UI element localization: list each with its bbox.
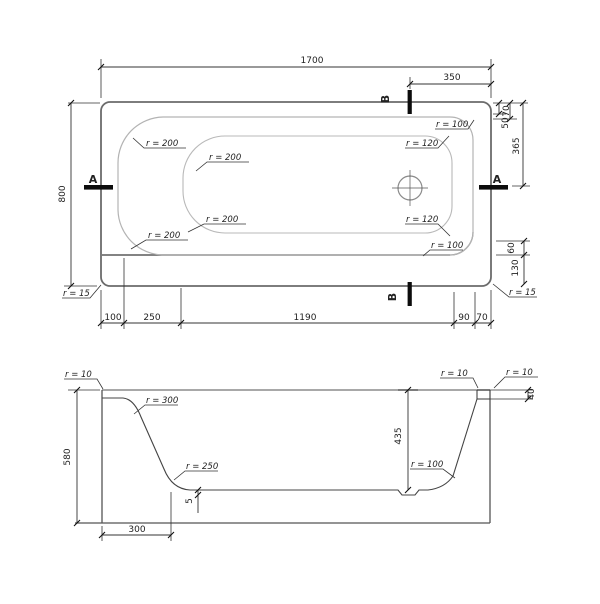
dim-bottom-60: 60 [507,242,517,254]
plan-extension-lines [64,59,530,329]
section-leader-lines [64,377,538,480]
tub-outer-edge [101,102,491,286]
plan-dimension-lines [71,67,524,323]
dim-height-580: 580 [63,448,73,465]
dim-width: 800 [58,185,68,202]
radius-200-outer-bottom: r = 200 [148,231,180,241]
radius-120-bottom: r = 120 [406,215,438,225]
plan-leader-lines [62,120,537,298]
bathtub-technical-drawing: A A B B 1700 350 800 100 250 1190 90 70 … [0,0,600,600]
radius-120-top: r = 120 [406,139,438,149]
section-b-bar-bottom [408,282,412,306]
dim-drain-365: 365 [512,137,522,154]
dim-rim-50: 50 [501,117,511,129]
dim-row-250: 250 [143,313,160,323]
dim-length: 1700 [301,56,324,66]
dim-rim-40: 40 [527,388,537,400]
section-a-label-right: A [493,173,502,186]
drain-centerlines [392,170,428,206]
section-b-label-top: B [379,95,392,103]
radius-200-outer-top: r = 200 [146,139,178,149]
radius-100-top: r = 100 [436,120,468,130]
section-extension-lines [68,390,533,541]
section-b-label-bottom: B [386,293,399,301]
dim-drain-offset: 350 [443,73,460,83]
plan-view: A A B B 1700 350 800 100 250 1190 90 70 … [58,56,537,329]
radius-100-bottom: r = 100 [431,241,463,251]
dim-depth-435: 435 [394,427,404,444]
radius-10-left: r = 10 [65,370,92,380]
dim-row-1190: 1190 [294,313,317,323]
radius-15-left: r = 15 [63,289,90,299]
dim-rim-70: 70 [502,105,512,117]
section-view: 580 435 300 40 5 r = 10 r = 10 r = 10 r … [63,368,538,541]
radius-300: r = 300 [146,396,178,406]
dim-row-90: 90 [458,313,470,323]
section-dimension-ticks [74,387,531,538]
dim-bottom-130: 130 [511,259,521,276]
dim-row-70: 70 [476,313,488,323]
radius-15-right: r = 15 [509,288,536,298]
radius-200-inner-top: r = 200 [209,153,241,163]
dim-row-100: 100 [104,313,121,323]
radius-100-section: r = 100 [411,460,443,470]
radius-200-inner-bottom: r = 200 [206,215,238,225]
drawing-canvas: A A B B 1700 350 800 100 250 1190 90 70 … [0,0,600,600]
radius-250: r = 250 [186,462,218,472]
dim-slope-5: 5 [185,498,195,504]
section-b-bar-top [408,90,412,114]
section-a-label-left: A [89,173,98,186]
section-dimension-lines [77,390,528,535]
radius-10-right-in: r = 10 [441,369,468,379]
radius-10-right-out: r = 10 [506,368,533,378]
dim-flat-300: 300 [128,525,145,535]
